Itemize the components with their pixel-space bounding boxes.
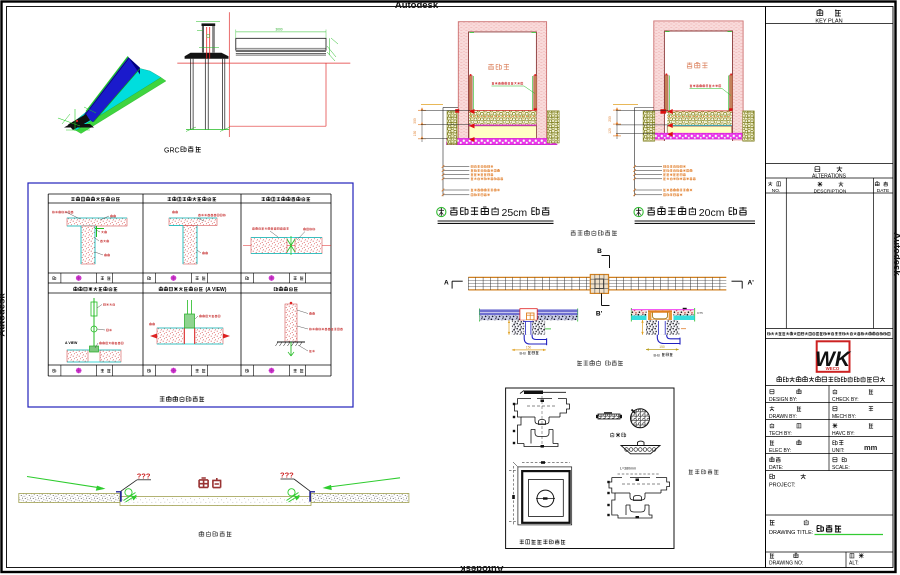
svg-text:B-B: B-B [654,353,661,357]
svg-text:UNIT:: UNIT: [832,448,845,454]
svg-text:B: B [597,248,602,255]
svg-text:mm: mm [864,443,878,452]
svg-text:A: A [444,280,449,287]
svg-text:150: 150 [526,346,532,350]
svg-text:3000: 3000 [275,28,282,32]
svg-text:DATE:: DATE: [769,465,783,471]
svg-text:150: 150 [659,345,665,349]
svg-text:ALTERATIONS: ALTERATIONS [812,174,847,180]
svg-text:120: 120 [608,128,612,134]
svg-text:B': B' [596,311,603,318]
svg-text:(A VIEW): (A VIEW) [206,287,227,293]
svg-text:CHECK BY:: CHECK BY: [832,397,859,403]
svg-text:SCALE:: SCALE: [832,465,850,471]
svg-text:D75: D75 [697,311,703,315]
svg-text:250: 250 [608,116,612,122]
svg-text:150: 150 [413,131,417,137]
svg-text:L=380mm: L=380mm [620,467,636,471]
svg-text:DESIGN BY:: DESIGN BY: [769,397,797,403]
svg-text:Autodesk: Autodesk [395,0,439,11]
svg-text:HAVC BY:: HAVC BY: [832,431,855,437]
svg-text:MECH BY:: MECH BY: [832,414,856,420]
svg-text:WECO: WECO [826,366,840,371]
svg-text:TECH BY:: TECH BY: [769,431,792,437]
svg-text:Autodesk: Autodesk [0,293,8,337]
svg-text:PROJECT:: PROJECT: [769,483,796,489]
svg-text:DRAWING NO:: DRAWING NO: [769,561,803,567]
svg-text:A': A' [748,280,755,287]
svg-text:???: ??? [137,472,151,481]
svg-text:Autodesk: Autodesk [891,232,900,276]
svg-text:A VIEW: A VIEW [65,341,78,345]
svg-text:300: 300 [413,118,417,124]
svg-text:DRAWING TITLE:: DRAWING TITLE: [769,530,814,536]
svg-text:Autodesk: Autodesk [460,563,504,574]
svg-text:B-B: B-B [520,352,527,356]
svg-text:20cm: 20cm [699,207,725,219]
svg-text:ALT:: ALT: [849,561,859,567]
svg-text:DESCRIPTION: DESCRIPTION [814,189,847,195]
svg-text:???: ??? [280,471,294,480]
svg-text:DRAWN BY:: DRAWN BY: [769,414,797,420]
svg-text:25cm: 25cm [502,207,528,219]
svg-text:GRC: GRC [164,148,180,155]
svg-text:ELEC BY:: ELEC BY: [769,448,791,454]
